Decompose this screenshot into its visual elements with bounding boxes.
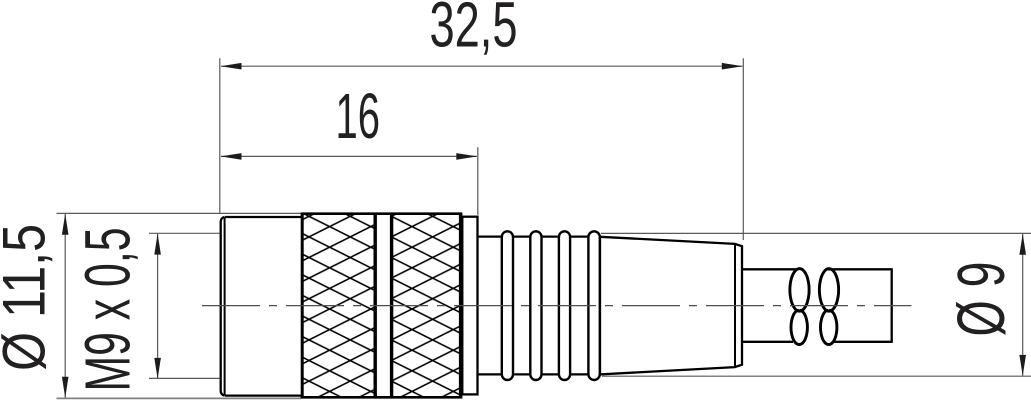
svg-text:32,5: 32,5 [430, 0, 518, 60]
svg-text:Ø 11,5: Ø 11,5 [0, 224, 58, 371]
svg-text:Ø 9: Ø 9 [944, 262, 1019, 337]
svg-text:16: 16 [336, 80, 381, 152]
svg-text:M9 x 0,5: M9 x 0,5 [72, 228, 144, 392]
